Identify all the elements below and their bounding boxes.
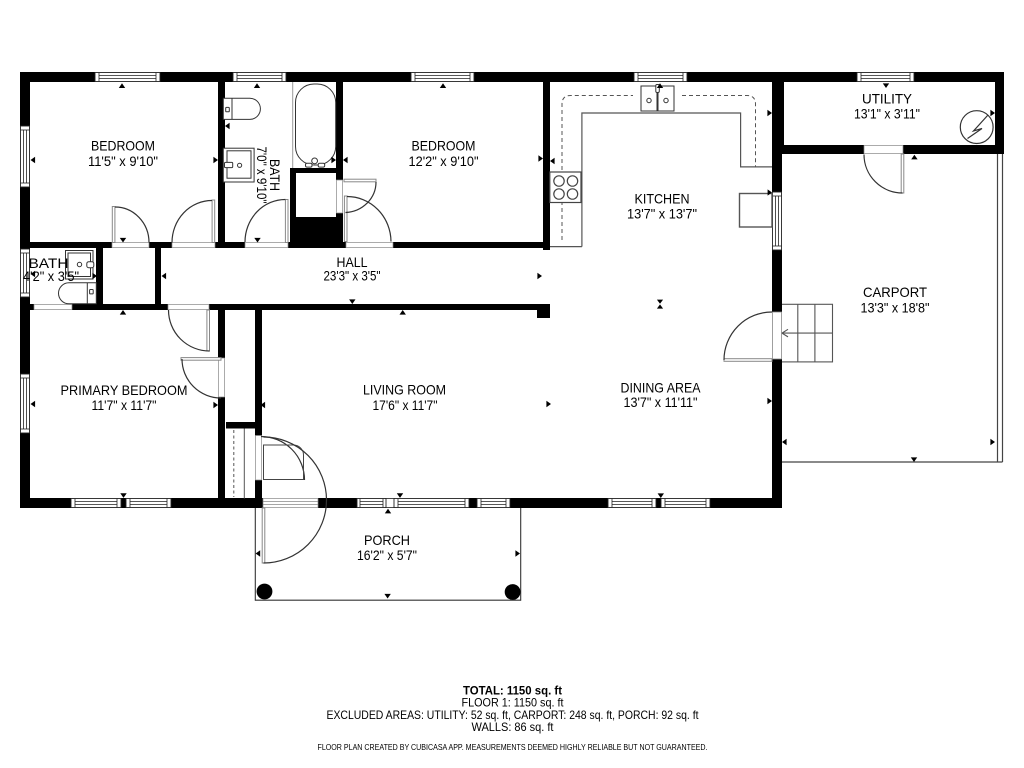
svg-text:13'7" x 13'7": 13'7" x 13'7" (627, 206, 697, 222)
svg-text:13'3" x 18'8": 13'3" x 18'8" (861, 300, 930, 316)
svg-text:KITCHEN: KITCHEN (635, 191, 690, 207)
svg-text:PORCH: PORCH (364, 532, 410, 548)
svg-text:7'0" x 9'10": 7'0" x 9'10" (254, 147, 270, 204)
svg-text:UTILITY: UTILITY (862, 91, 913, 107)
svg-text:LIVING ROOM: LIVING ROOM (363, 382, 446, 398)
svg-text:CARPORT: CARPORT (863, 284, 927, 300)
svg-text:FLOOR PLAN CREATED BY CUBICASA: FLOOR PLAN CREATED BY CUBICASA APP. MEAS… (318, 742, 708, 752)
svg-text:11'5" x 9'10": 11'5" x 9'10" (88, 153, 158, 169)
svg-text:BEDROOM: BEDROOM (412, 138, 476, 154)
svg-text:13'1" x 3'11": 13'1" x 3'11" (854, 106, 920, 122)
svg-text:4'2" x 3'5": 4'2" x 3'5" (23, 268, 79, 284)
svg-text:23'3" x 3'5": 23'3" x 3'5" (324, 268, 381, 284)
svg-text:16'2" x 5'7": 16'2" x 5'7" (357, 547, 417, 563)
svg-text:11'7" x 11'7": 11'7" x 11'7" (92, 397, 157, 413)
svg-text:17'6" x 11'7": 17'6" x 11'7" (373, 397, 438, 413)
svg-text:13'7" x 11'11": 13'7" x 11'11" (624, 394, 698, 410)
svg-text:PRIMARY BEDROOM: PRIMARY BEDROOM (61, 382, 188, 398)
svg-text:12'2" x 9'10": 12'2" x 9'10" (409, 153, 479, 169)
svg-text:BEDROOM: BEDROOM (91, 138, 155, 154)
svg-text:WALLS: 86 sq. ft: WALLS: 86 sq. ft (472, 720, 555, 734)
